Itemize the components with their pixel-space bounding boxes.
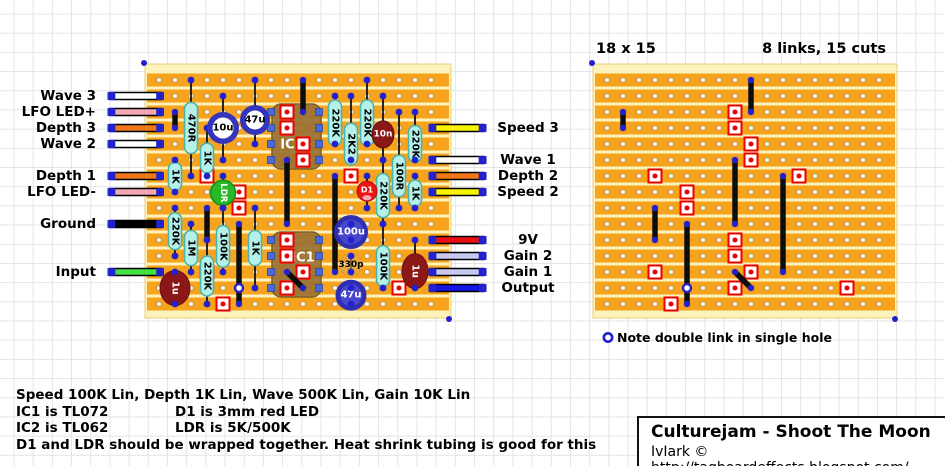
wrap-note: D1 and LDR should be wrapped together. H… (16, 437, 596, 453)
pad-dot (172, 253, 179, 260)
depth-3-wire (110, 125, 162, 132)
pad-dot (284, 157, 290, 163)
pad-dot (172, 269, 179, 276)
wave-3-wire (110, 93, 162, 100)
pad-dot (141, 60, 147, 66)
ic-pin-pad (268, 141, 275, 148)
lfo-led--wire (110, 189, 162, 196)
svg-text:1K: 1K (170, 169, 181, 185)
pad-dot (332, 93, 339, 100)
pad-dot (172, 125, 178, 131)
svg-text:220K: 220K (378, 181, 389, 211)
svg-text:220K: 220K (330, 108, 341, 138)
pad-dot (220, 173, 227, 180)
pad-dot (732, 269, 738, 275)
ic-pin-pad (316, 141, 323, 148)
pad-dot (396, 109, 403, 116)
ic-pin-pad (268, 253, 275, 260)
svg-text:1K: 1K (250, 241, 261, 257)
svg-text:100u: 100u (337, 227, 365, 238)
pad-dot (348, 253, 355, 260)
svg-text:10n: 10n (374, 129, 393, 139)
pad-dot (620, 109, 626, 115)
svg-text:1K: 1K (202, 151, 213, 167)
pad-dot (364, 141, 371, 148)
pad-dot (332, 141, 339, 148)
pad-dot (652, 237, 658, 243)
pad-dot (446, 316, 452, 322)
pad-dot (364, 205, 371, 212)
pad-dot (620, 125, 626, 131)
pad-dot (220, 269, 227, 276)
input-wire (110, 269, 162, 276)
ic-pin-pad (268, 237, 275, 244)
pad-dot (348, 269, 355, 276)
pad-label-input: Input (0, 263, 96, 281)
pad-dot (188, 77, 195, 84)
ic-pin-pad (268, 285, 275, 292)
pad-dot (732, 157, 738, 163)
svg-text:220K: 220K (362, 108, 373, 138)
pots-spec-note: Speed 100K Lin, Depth 1K Lin, Wave 500K … (16, 387, 470, 403)
pad-label-speed-3: Speed 3 (468, 119, 588, 137)
pad-dot (412, 157, 419, 164)
double-link-note: Note double link in single hole (617, 330, 832, 345)
pad-label-speed-2: Speed 2 (468, 183, 588, 201)
pad-dot (172, 189, 179, 196)
pad-dot (332, 269, 338, 275)
svg-text:1K: 1K (410, 186, 421, 202)
lfo-led--wire (110, 109, 162, 116)
pad-dot (220, 205, 227, 212)
svg-text:330p: 330p (338, 260, 364, 270)
pad-dot (204, 301, 211, 308)
ic-pin-pad (316, 253, 323, 260)
pad-dot (204, 173, 211, 180)
pad-dot (220, 93, 227, 100)
board-size-label: 18 x 15 (596, 41, 656, 57)
pad-dot (652, 205, 658, 211)
pad-dot (348, 285, 355, 292)
ic-pin-pad (316, 269, 323, 276)
svg-text:220K: 220K (202, 262, 213, 292)
pad-dot (892, 316, 898, 322)
svg-text:1M: 1M (186, 240, 197, 257)
svg-text:10u: 10u (212, 123, 233, 134)
pad-dot (300, 285, 306, 291)
ic-pin-pad (316, 237, 323, 244)
pad-dot (748, 285, 754, 291)
ic2-spec-note: IC2 is TL062 (16, 420, 108, 436)
ic-pin-pad (316, 285, 323, 292)
ic-pin-pad (268, 157, 275, 164)
pad-dot (780, 173, 786, 179)
pad-dot (684, 221, 690, 227)
author-credit: IvIark © http://tagboardeffects.blogspot… (651, 444, 945, 466)
double-link-hole-marker (235, 284, 243, 292)
pad-label-wave-2: Wave 2 (0, 135, 96, 153)
pad-dot (172, 157, 179, 164)
pad-dot (188, 269, 195, 276)
svg-text:2K2: 2K2 (346, 133, 357, 155)
ldr-spec-note: LDR is 5K/500K (175, 420, 291, 436)
pad-label-output: Output (468, 279, 588, 297)
svg-text:100R: 100R (394, 162, 405, 191)
pad-dot (589, 60, 595, 66)
pad-dot (412, 237, 419, 244)
d1-spec-note: D1 is 3mm red LED (175, 404, 319, 420)
pad-dot (412, 109, 419, 116)
ic-pin-pad (316, 125, 323, 132)
pad-dot (380, 157, 387, 164)
ic1-spec-note: IC1 is TL072 (16, 404, 108, 420)
pad-dot (236, 301, 242, 307)
pad-dot (252, 205, 259, 212)
pad-dot (748, 77, 754, 83)
pad-dot (348, 157, 355, 164)
svg-text:LDR: LDR (218, 183, 228, 202)
double-link-note-icon (604, 333, 612, 341)
double-link-hole-marker (683, 284, 691, 292)
ic-label-ic1: IC1 (291, 251, 314, 266)
pad-dot (300, 77, 306, 83)
pad-dot (348, 301, 355, 308)
pad-dot (284, 269, 290, 275)
pad-dot (348, 221, 355, 228)
pad-dot (252, 285, 259, 292)
title-block: Culturejam - Shoot The Moon IvIark © htt… (637, 416, 945, 466)
pad-dot (412, 285, 419, 292)
pad-dot (300, 109, 306, 115)
ic-pin-pad (316, 109, 323, 116)
pad-dot (380, 285, 387, 292)
svg-text:100K: 100K (218, 232, 229, 262)
svg-text:D1: D1 (361, 186, 374, 195)
pad-dot (188, 173, 195, 180)
ground-wire (110, 221, 162, 228)
project-title: Culturejam - Shoot The Moon (651, 422, 945, 442)
pad-dot (252, 77, 259, 84)
pad-dot (236, 221, 242, 227)
pad-dot (396, 205, 403, 212)
pad-dot (284, 221, 290, 227)
links-cuts-count-label: 8 links, 15 cuts (686, 41, 886, 57)
pad-dot (412, 205, 419, 212)
pad-dot (172, 109, 178, 115)
pad-dot (348, 237, 355, 244)
pad-label-lfo-led-: LFO LED- (0, 183, 96, 201)
pad-dot (252, 141, 259, 148)
ic-pin-pad (268, 269, 275, 276)
svg-text:1u: 1u (410, 265, 421, 278)
pad-dot (172, 205, 179, 212)
svg-text:47u: 47u (244, 115, 265, 126)
pad-dot (172, 301, 179, 308)
svg-text:470R: 470R (186, 114, 197, 143)
pad-dot (204, 205, 210, 211)
depth-1-wire (110, 173, 162, 180)
svg-text:100K: 100K (378, 252, 389, 282)
svg-text:220K: 220K (410, 130, 421, 160)
pad-dot (380, 221, 387, 228)
stripboard-layout-page: IC2IC1470R1K1K220K1M100K220K1K220K220K2K… (0, 0, 945, 466)
pad-dot (748, 109, 754, 115)
pad-dot (364, 173, 371, 180)
pad-dot (220, 157, 227, 164)
pad-dot (780, 269, 786, 275)
pad-dot (684, 301, 690, 307)
pad-dot (332, 173, 338, 179)
pad-dot (204, 237, 211, 244)
pad-dot (188, 221, 195, 228)
pad-dot (380, 93, 387, 100)
svg-text:1u: 1u (170, 281, 181, 294)
pad-dot (364, 77, 371, 84)
pad-label-ground: Ground (0, 215, 96, 233)
ic-pin-pad (316, 157, 323, 164)
pad-dot (412, 173, 419, 180)
right-board (593, 64, 897, 318)
wave-2-wire (110, 141, 162, 148)
svg-text:220K: 220K (170, 217, 181, 247)
pad-dot (732, 221, 738, 227)
pad-dot (348, 93, 355, 100)
